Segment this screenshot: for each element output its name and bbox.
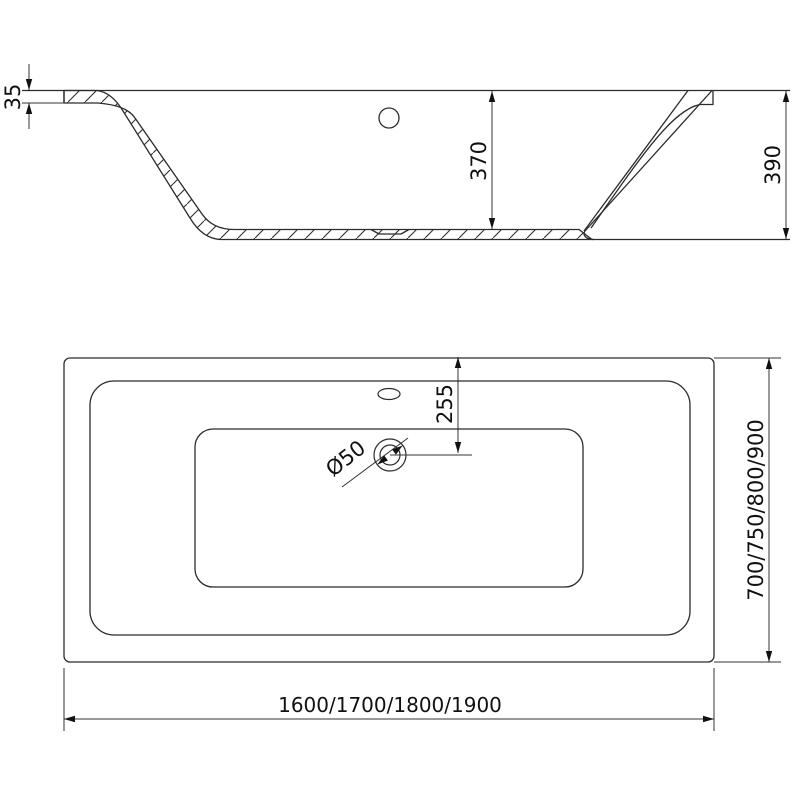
tub-section-wall [64, 91, 592, 240]
dim-width-options-label: 700/750/800/900 [744, 419, 768, 601]
dim-rim-thickness-label: 35 [1, 84, 25, 111]
dim-inner-depth-label: 370 [467, 141, 491, 181]
right-wall-inner-edge [591, 105, 700, 229]
bathtub-technical-drawing: 35 370 390 255 [0, 0, 800, 800]
side-section-view: 35 370 390 [1, 64, 790, 240]
dim-length-options-label: 1600/1700/1800/1900 [278, 693, 502, 717]
dim-length-options: 1600/1700/1800/1900 [64, 668, 714, 731]
dim-inner-depth: 370 [467, 91, 495, 229]
dim-drain-offset: 255 [433, 357, 461, 453]
dim-overall-height: 390 [761, 91, 789, 239]
dim-overall-height-label: 390 [761, 145, 785, 185]
dim-rim-thickness: 35 [1, 64, 32, 129]
overflow-slot-plan [378, 389, 400, 400]
dim-width-options: 700/750/800/900 [714, 358, 781, 662]
plan-rim-inner-edge [90, 381, 690, 635]
plan-outer-edge [64, 358, 714, 662]
dim-drain-offset-label: 255 [433, 384, 457, 424]
plan-top-view: 255 Ø50 700/750/800/900 1600/1700/1800/1… [64, 357, 781, 731]
overflow-hole-side [379, 108, 399, 128]
right-wall-outer-edge [584, 91, 712, 240]
dim-drain-diameter: Ø50 [321, 436, 408, 487]
drawing-canvas: 35 370 390 255 [0, 0, 800, 800]
dim-drain-diameter-label: Ø50 [321, 436, 370, 482]
right-wall-mid-edge [584, 91, 688, 232]
